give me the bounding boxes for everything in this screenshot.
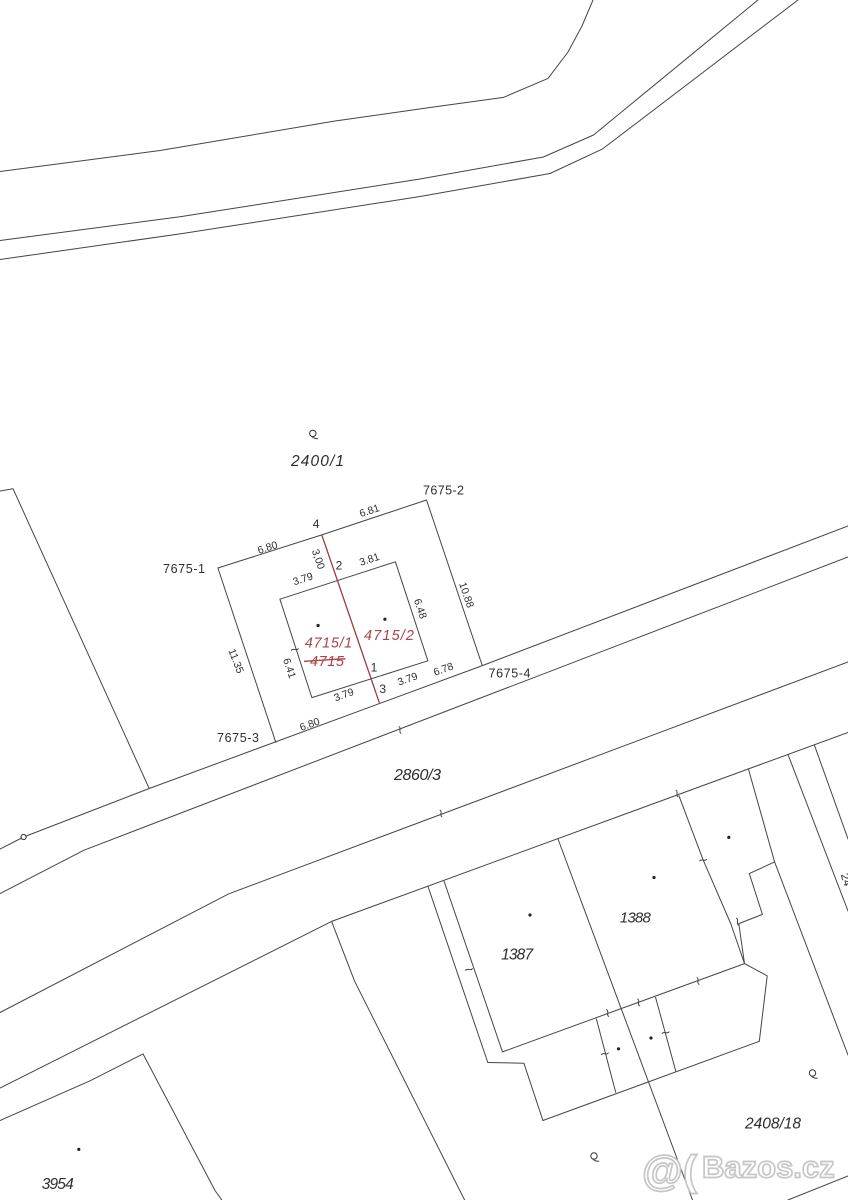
svg-text:2408/18: 2408/18 [744, 1116, 801, 1133]
svg-text:4: 4 [313, 517, 320, 531]
svg-text:2860/3: 2860/3 [393, 767, 441, 784]
svg-text:4715/2: 4715/2 [364, 628, 414, 644]
svg-text:3954: 3954 [42, 1176, 74, 1193]
svg-text:1387: 1387 [501, 946, 534, 963]
svg-text:4715/1: 4715/1 [305, 635, 353, 651]
svg-text:1: 1 [371, 660, 378, 674]
svg-text:@(: @( [642, 1147, 697, 1194]
svg-text:7675-3: 7675-3 [217, 731, 259, 745]
svg-text:4715: 4715 [310, 654, 345, 670]
svg-text:2400/1: 2400/1 [290, 453, 344, 470]
svg-text:3: 3 [379, 682, 386, 696]
svg-text:7675-1: 7675-1 [163, 562, 205, 576]
svg-text:1388: 1388 [620, 910, 652, 927]
svg-text:Bazos.cz: Bazos.cz [702, 1150, 835, 1185]
svg-text:7675-2: 7675-2 [423, 484, 464, 498]
svg-text:2: 2 [336, 559, 343, 573]
svg-text:7675-4: 7675-4 [489, 667, 531, 681]
